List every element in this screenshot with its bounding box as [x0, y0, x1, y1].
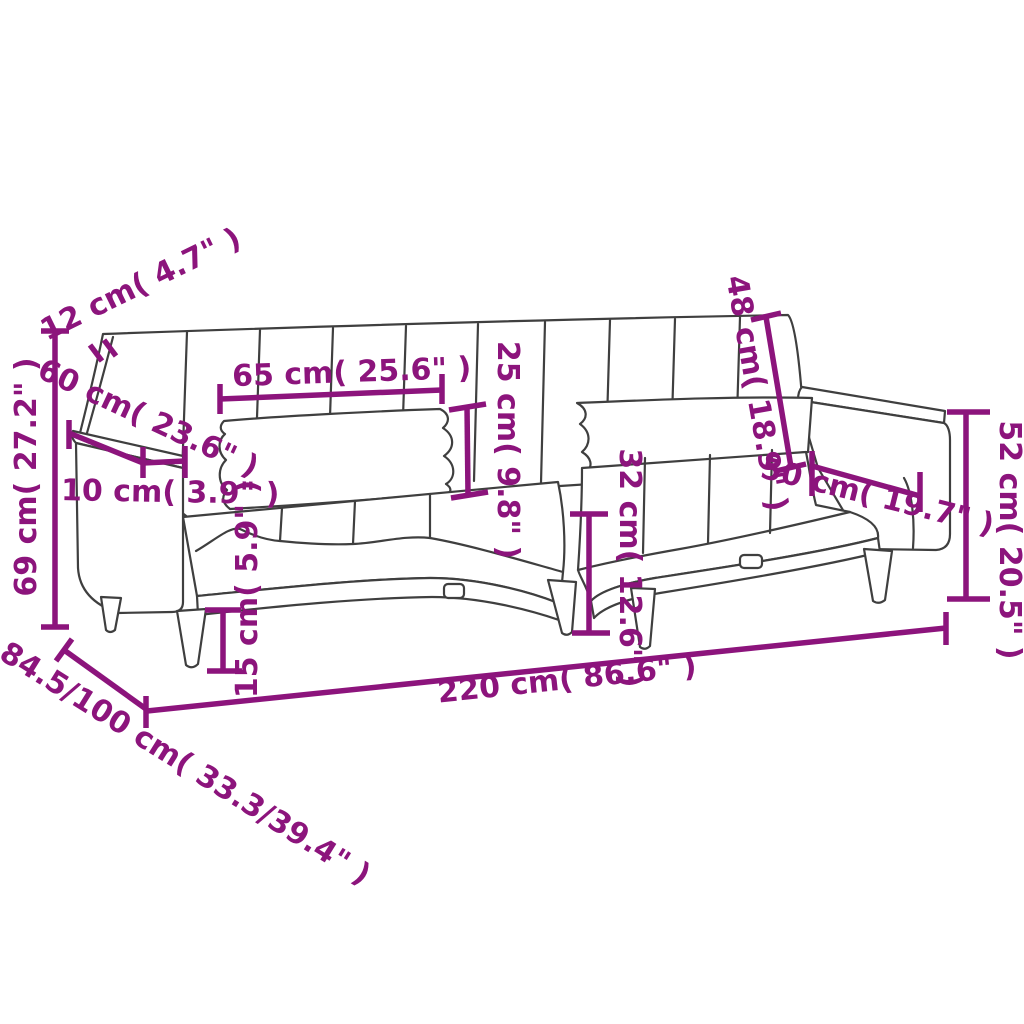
leg-right-front [864, 549, 892, 603]
label-220cm: 220 cm( 86.6" ) [436, 649, 698, 711]
leg-back-small-left [444, 584, 464, 598]
label-12cm: 12 cm( 4.7" ) [35, 221, 247, 348]
dimension-diagram: 12 cm( 4.7" ) 69 cm( 27.2" ) 60 cm( 23.6… [0, 0, 1024, 1024]
label-25cm: 25 cm( 9.8" ) [490, 341, 525, 559]
label-32cm: 32 cm( 12.6" ) [612, 448, 647, 687]
label-84cm: 84.5/100 cm( 33.3/39.4" ) [0, 635, 377, 893]
label-52cm: 52 cm( 20.5" ) [992, 420, 1024, 659]
leg-left-front [177, 609, 206, 667]
left-armrest-face [76, 443, 183, 613]
label-15cm: 15 cm( 5.9" ) [230, 480, 265, 698]
leg-back-small-right [740, 555, 762, 568]
leg-left-rear [101, 597, 121, 632]
label-69cm: 69 cm( 27.2" ) [9, 357, 44, 596]
sofa-dimension-svg: 12 cm( 4.7" ) 69 cm( 27.2" ) 60 cm( 23.6… [0, 0, 1024, 1024]
